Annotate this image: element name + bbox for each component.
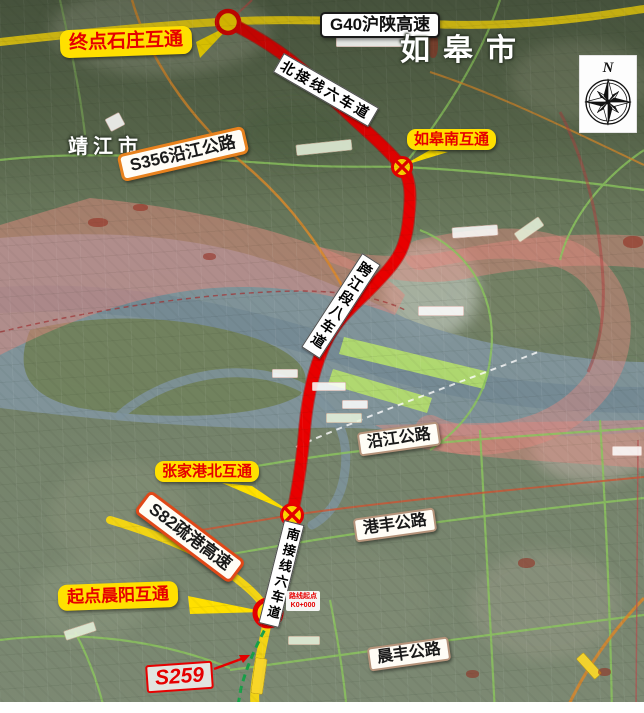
s356-road-label: S356沿江公路 xyxy=(117,126,250,182)
village-blob xyxy=(598,668,611,676)
village-blob xyxy=(466,670,479,678)
chenfeng-road-label: 晨丰公路 xyxy=(367,636,452,672)
route-start-milestone: 路线起点 K0+000 xyxy=(286,591,320,611)
milestone-line1: 路线起点 xyxy=(289,592,317,601)
basemap-micro-label xyxy=(105,112,126,132)
milestone-line2: K0+000 xyxy=(289,601,317,610)
gangfeng-road-label: 港丰公路 xyxy=(353,507,438,543)
basemap-micro-label xyxy=(296,139,353,156)
s82-highway-label: S82疏港高速 xyxy=(134,490,247,584)
village-blob xyxy=(88,218,108,227)
bottom-white-margin xyxy=(0,702,644,713)
basemap-micro-label xyxy=(251,657,268,694)
annotation-layer: 终点石庄互通 G40沪陕高速 如皋市 北接线六车道 靖江市 S356沿江公路 如… xyxy=(0,0,644,713)
basemap-micro-label xyxy=(336,36,404,47)
basemap-micro-label xyxy=(342,400,368,409)
route-south-section-label: 南接线六车道 xyxy=(258,520,304,628)
basemap-micro-label xyxy=(63,621,97,640)
zhangjiagang-north-interchange-label: 张家港北互通 xyxy=(155,461,259,482)
route-river-section-label: 跨江段八车道 xyxy=(301,253,381,359)
basemap-micro-label xyxy=(612,446,642,456)
basemap-micro-label xyxy=(312,382,346,391)
basemap-micro-label xyxy=(514,216,545,242)
basemap-micro-label xyxy=(288,636,320,645)
basemap-micro-label xyxy=(576,652,602,679)
basemap-micro-label xyxy=(272,369,298,378)
s259-road-label: S259 xyxy=(145,661,214,694)
basemap-micro-label xyxy=(418,306,464,316)
start-interchange-label: 起点晨阳互通 xyxy=(58,581,179,611)
village-blob xyxy=(203,253,216,260)
satellite-map-canvas[interactable]: 终点石庄互通 G40沪陕高速 如皋市 北接线六车道 靖江市 S356沿江公路 如… xyxy=(0,0,644,713)
village-blob xyxy=(133,204,148,211)
village-blob xyxy=(623,236,643,248)
route-north-section-label: 北接线六车道 xyxy=(273,53,379,127)
basemap-micro-label xyxy=(452,224,499,238)
rugao-city-label: 如皋市 xyxy=(400,34,529,69)
rugao-south-interchange-label: 如皋南互通 xyxy=(407,129,496,150)
compass-north-letter: N xyxy=(602,60,615,76)
end-interchange-label: 终点石庄互通 xyxy=(60,26,193,58)
compass-icon: N xyxy=(579,55,637,133)
yanjiang-road-label: 沿江公路 xyxy=(357,421,442,457)
village-blob xyxy=(518,558,535,568)
basemap-micro-label xyxy=(326,413,362,423)
